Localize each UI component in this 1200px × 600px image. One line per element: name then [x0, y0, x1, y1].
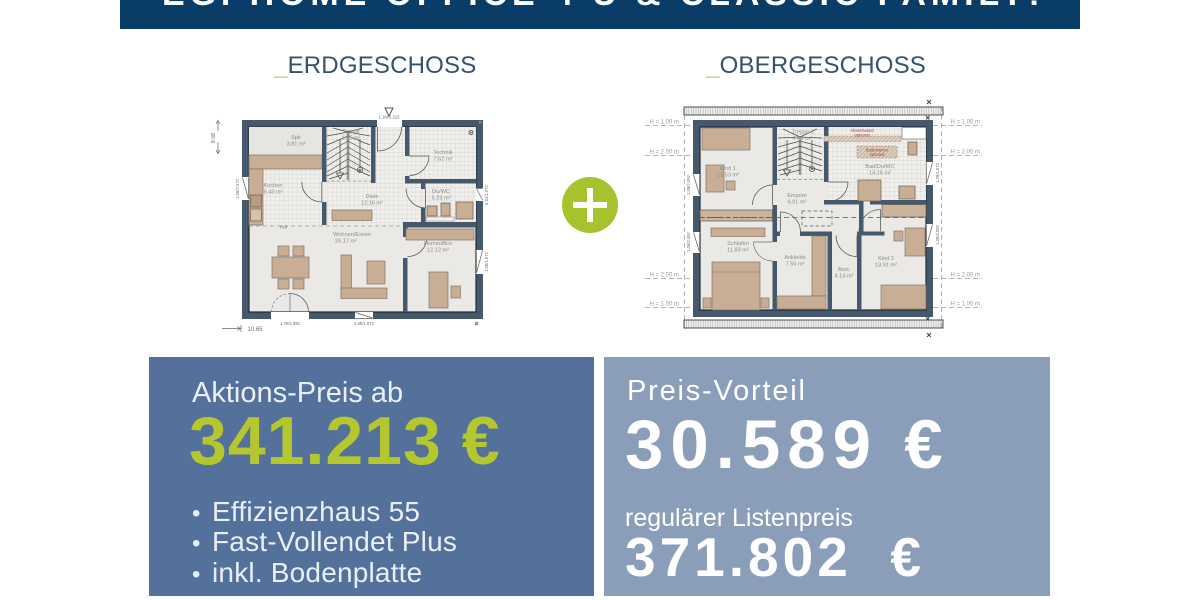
svg-text:Schlafen: Schlafen [727, 241, 749, 247]
svg-text:optional: optional [854, 133, 869, 138]
svg-text:26.17 m²: 26.17 m² [335, 239, 357, 245]
svg-text:H = 1.00 m: H = 1.00 m [951, 302, 981, 308]
svg-text:1.09/2.092: 1.09/2.092 [935, 224, 940, 244]
svg-text:Abst.: Abst. [838, 267, 851, 273]
svg-text:Diele: Diele [366, 194, 379, 200]
svg-text:1.76/2.092: 1.76/2.092 [280, 321, 300, 326]
svg-text:H = 1.00 m: H = 1.00 m [649, 120, 679, 126]
svg-text:10.65: 10.65 [247, 327, 263, 333]
svg-text:1.09/2.092: 1.09/2.092 [686, 174, 691, 194]
svg-text:1.09/1.072: 1.09/1.072 [484, 251, 489, 271]
svg-text:1.1M/2.215: 1.1M/2.215 [379, 115, 401, 120]
svg-text:4.46 m²: 4.46 m² [793, 136, 812, 142]
svg-text:Treppe: Treppe [342, 129, 360, 135]
svg-text:4.14 m²: 4.14 m² [835, 274, 854, 280]
svg-text:7.50 m²: 7.50 m² [786, 262, 805, 268]
svg-text:8.68: 8.68 [211, 133, 217, 143]
svg-text:3.81 m²: 3.81 m² [287, 142, 306, 148]
svg-text:Bad/Du/WC: Bad/Du/WC [865, 164, 895, 170]
svg-text:Treppe 1: Treppe 1 [792, 130, 814, 136]
svg-text:6.91 m²: 6.91 m² [788, 200, 807, 206]
svg-text:H = 2.00 m: H = 2.00 m [649, 150, 679, 156]
svg-text:Wohnen/Essen: Wohnen/Essen [333, 232, 371, 238]
svg-text:13.53 m²: 13.53 m² [717, 173, 739, 179]
svg-text:12.16 m²: 12.16 m² [361, 201, 383, 207]
svg-text:Kind 2: Kind 2 [878, 256, 894, 262]
svg-text:6.61/1.072: 6.61/1.072 [484, 184, 489, 204]
svg-text:Ankleide: Ankleide [784, 255, 805, 261]
svg-text:13.91 m²: 13.91 m² [875, 263, 897, 269]
svg-text:Ruf: Ruf [280, 225, 288, 230]
svg-text:Technik: Technik [434, 150, 453, 156]
svg-text:12.12 m²: 12.12 m² [427, 248, 449, 254]
svg-text:Kind 1: Kind 1 [720, 166, 736, 172]
svg-text:Spk: Spk [291, 135, 301, 141]
svg-text:1.09/2.092: 1.09/2.092 [686, 231, 691, 251]
svg-text:H = 2.00 m: H = 2.00 m [951, 273, 981, 279]
svg-text:5.23 m²: 5.23 m² [432, 196, 451, 202]
svg-text:9.43 m²: 9.43 m² [264, 190, 283, 196]
svg-text:1.95 m²: 1.95 m² [342, 136, 361, 142]
svg-text:11.83 m²: 11.83 m² [727, 248, 749, 254]
svg-text:H = 2.00 m: H = 2.00 m [649, 273, 679, 279]
svg-text:1.09/1.072: 1.09/1.072 [354, 321, 374, 326]
svg-text:Kochen: Kochen [264, 183, 283, 189]
svg-text:Empore: Empore [787, 193, 807, 199]
svg-text:1.09/2.072: 1.09/2.072 [235, 178, 240, 198]
svg-text:optional: optional [869, 152, 884, 157]
svg-text:7.62 m²: 7.62 m² [434, 157, 453, 163]
svg-text:14.16 m²: 14.16 m² [869, 171, 891, 177]
svg-text:Homeoffice: Homeoffice [424, 241, 452, 247]
svg-text:H = 2.00 m: H = 2.00 m [951, 150, 981, 156]
svg-text:1.09/1.072: 1.09/1.072 [935, 162, 940, 182]
svg-text:H = 1.00 m: H = 1.00 m [951, 120, 981, 126]
svg-text:Du/WC: Du/WC [432, 189, 450, 195]
svg-text:H = 1.00 m: H = 1.00 m [649, 302, 679, 308]
